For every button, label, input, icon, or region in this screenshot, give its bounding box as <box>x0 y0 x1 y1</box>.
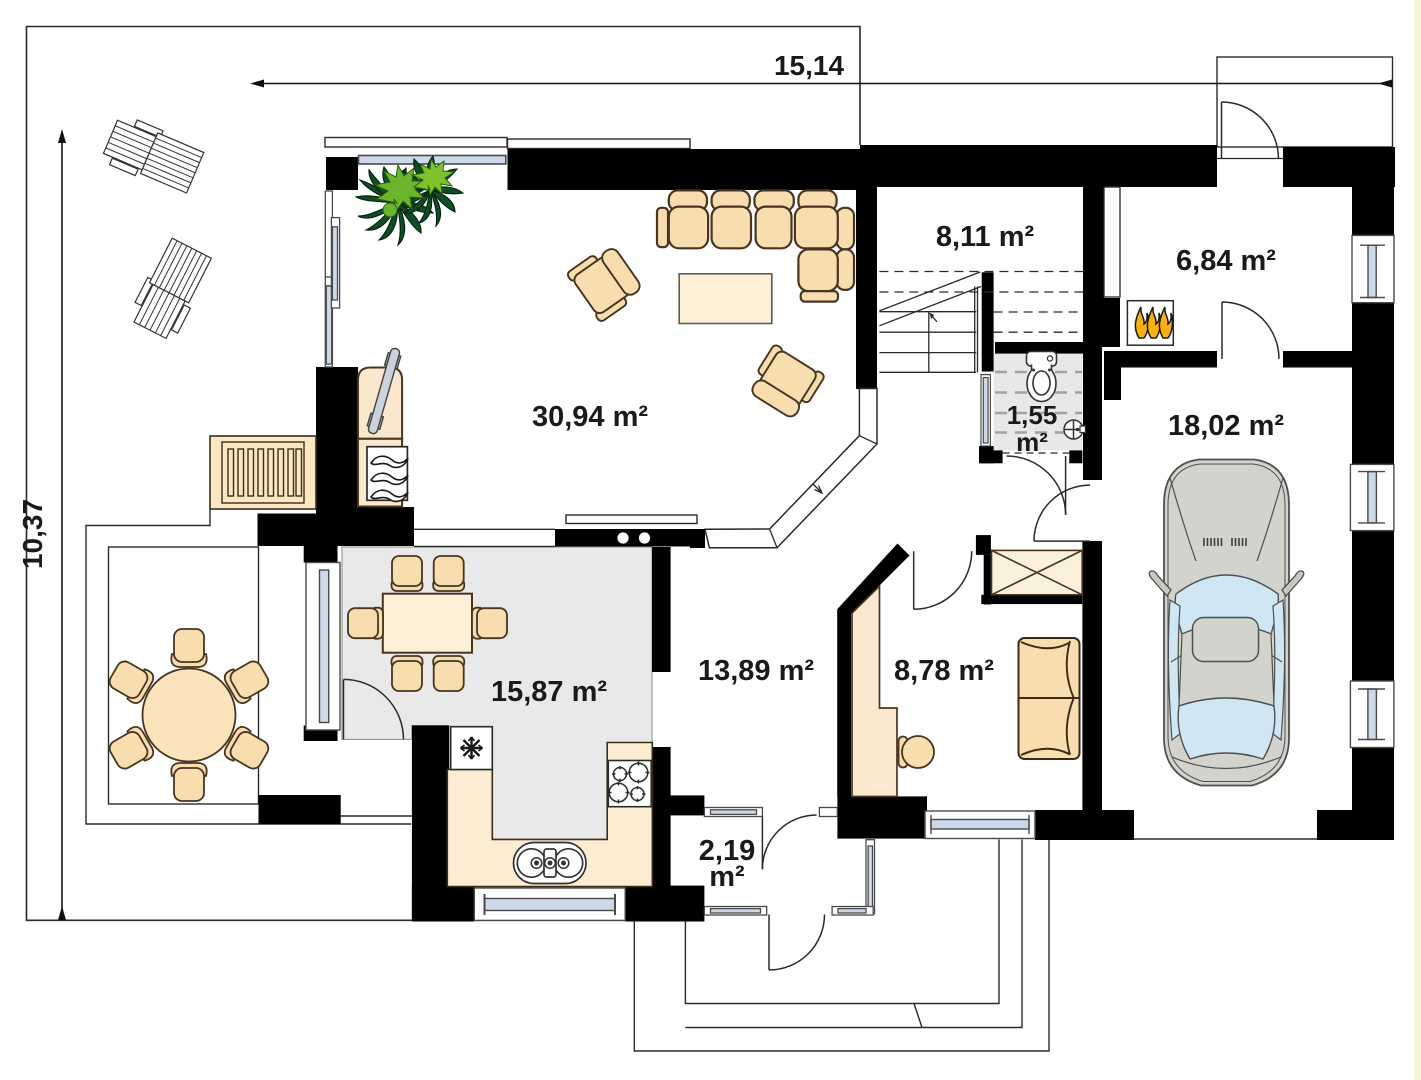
svg-text:m²: m² <box>709 861 745 893</box>
svg-text:1,55: 1,55 <box>1007 400 1058 430</box>
svg-text:18,02 m²: 18,02 m² <box>1168 410 1284 442</box>
svg-text:m²: m² <box>1016 427 1048 457</box>
svg-text:8,78 m²: 8,78 m² <box>894 655 994 687</box>
svg-text:8,11 m²: 8,11 m² <box>936 221 1035 253</box>
svg-text:30,94 m²: 30,94 m² <box>532 401 648 433</box>
svg-text:15,87 m²: 15,87 m² <box>491 676 607 708</box>
svg-text:15,14: 15,14 <box>774 50 844 81</box>
svg-text:6,84 m²: 6,84 m² <box>1176 245 1276 277</box>
svg-text:13,89 m²: 13,89 m² <box>698 655 814 687</box>
svg-text:10,37: 10,37 <box>17 499 48 569</box>
